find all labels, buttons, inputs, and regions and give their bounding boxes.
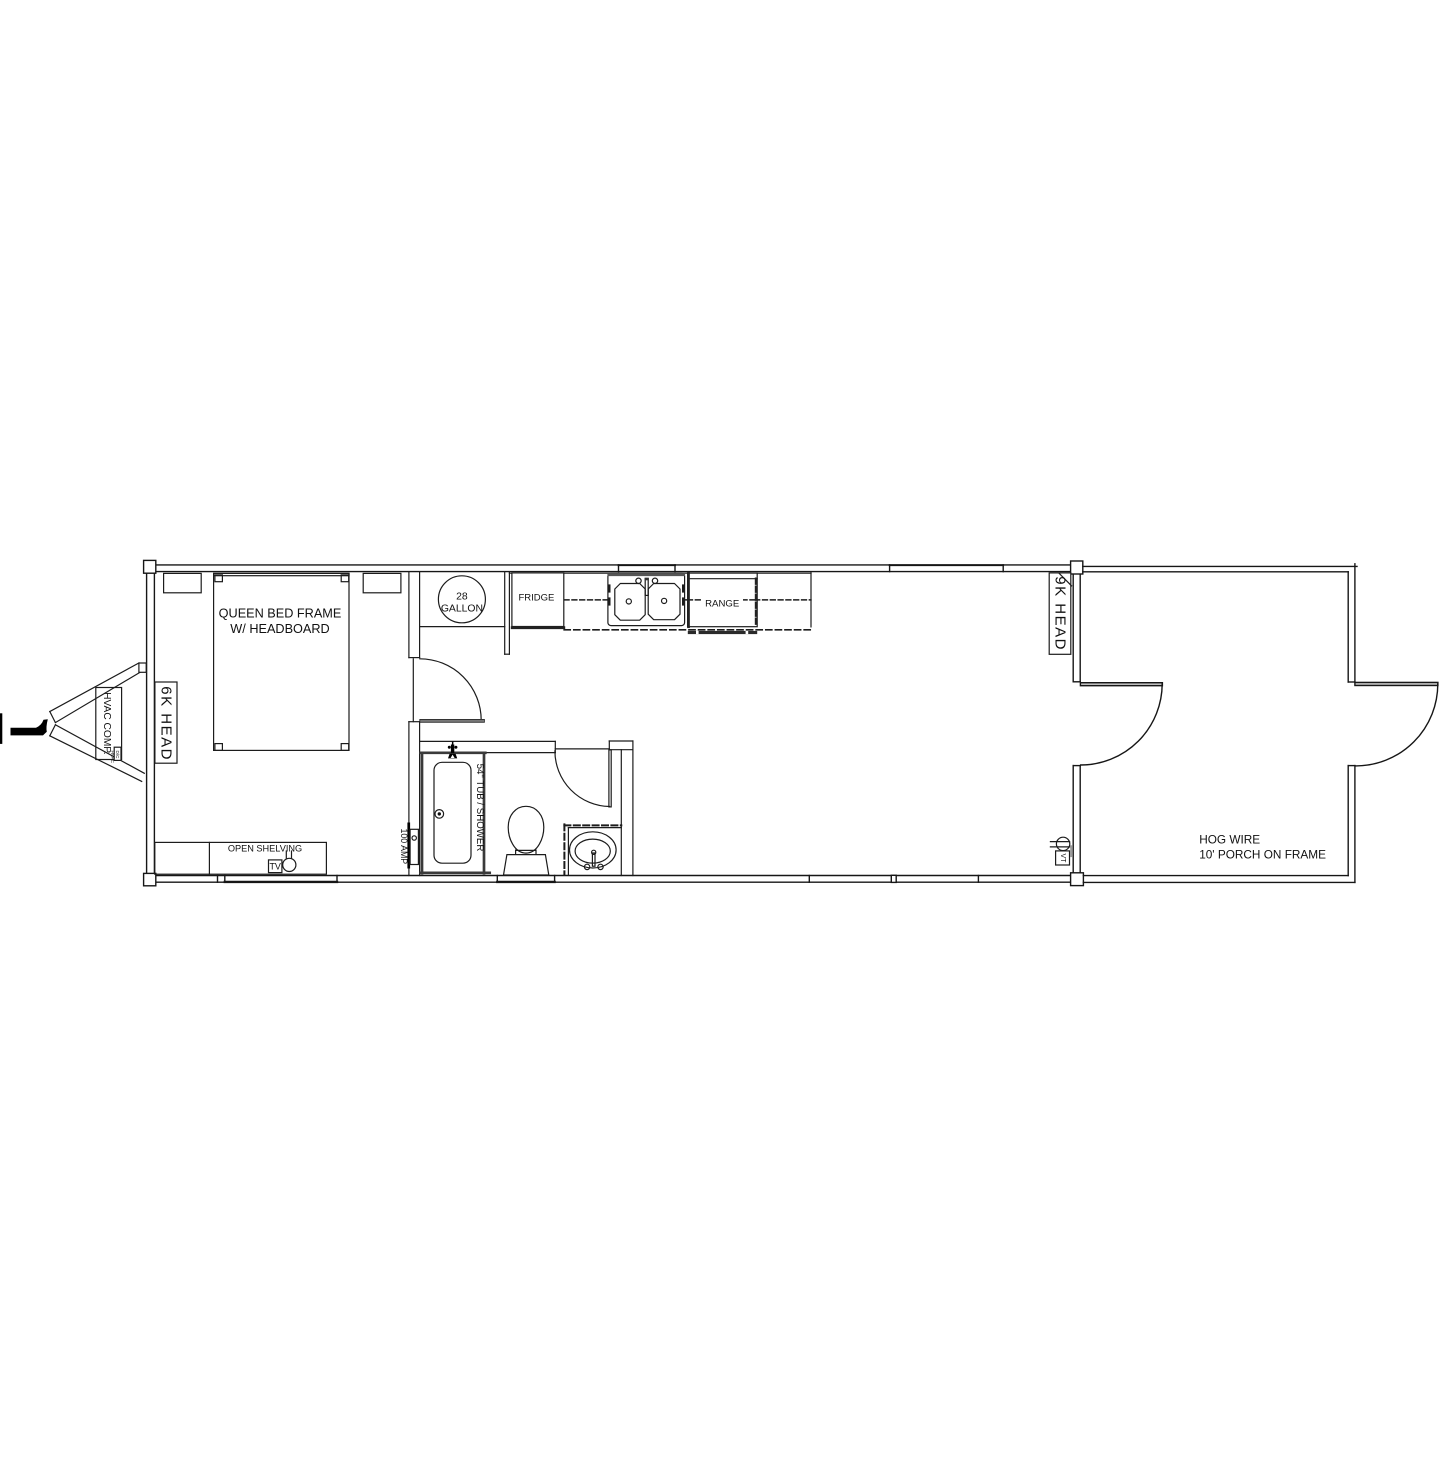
- svg-text:TV: TV: [269, 862, 281, 872]
- svg-text:FRIDGE: FRIDGE: [518, 592, 554, 603]
- svg-text:QUEEN BED FRAME: QUEEN BED FRAME: [219, 606, 342, 620]
- svg-text:D/C: D/C: [115, 751, 120, 760]
- svg-text:VT: VT: [1059, 854, 1066, 864]
- svg-text:HVAC COMP.: HVAC COMP.: [101, 692, 112, 754]
- svg-text:100 AMP: 100 AMP: [399, 828, 409, 864]
- svg-text:10' PORCH ON FRAME: 10' PORCH ON FRAME: [1199, 848, 1326, 862]
- svg-text:28: 28: [456, 592, 468, 603]
- svg-text:RANGE: RANGE: [705, 599, 739, 610]
- svg-text:6K HEAD: 6K HEAD: [157, 686, 174, 761]
- svg-text:HVAC: HVAC: [110, 751, 115, 764]
- svg-text:54" TUB / SHOWER: 54" TUB / SHOWER: [474, 764, 485, 852]
- svg-text:HOG WIRE: HOG WIRE: [1199, 832, 1260, 846]
- svg-text:9K HEAD: 9K HEAD: [1052, 576, 1069, 651]
- svg-text:W/ HEADBOARD: W/ HEADBOARD: [230, 622, 329, 636]
- svg-text:GALLON: GALLON: [441, 603, 483, 614]
